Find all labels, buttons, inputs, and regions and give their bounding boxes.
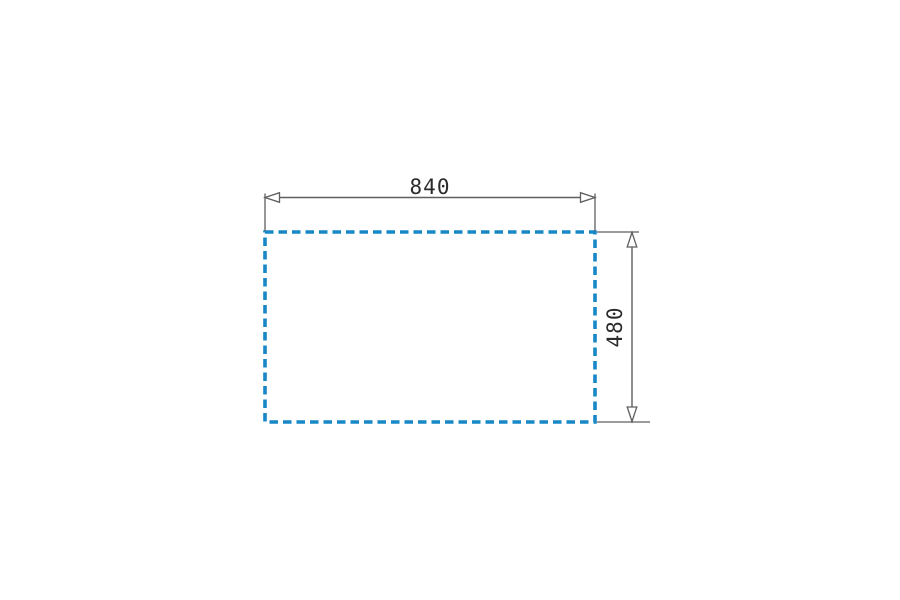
arrowhead-right (581, 193, 596, 203)
arrowhead-up (627, 233, 637, 248)
dimension-drawing-svg: 840 480 (0, 0, 900, 600)
width-dimension: 840 (265, 175, 595, 231)
height-dimension-label: 480 (603, 307, 627, 348)
arrowhead-down (627, 407, 637, 422)
arrowhead-left (265, 193, 280, 203)
dashed-outline-rect (265, 232, 595, 422)
technical-drawing-page: 840 480 (0, 0, 900, 600)
width-dimension-label: 840 (410, 175, 451, 199)
height-dimension: 480 (597, 232, 650, 422)
